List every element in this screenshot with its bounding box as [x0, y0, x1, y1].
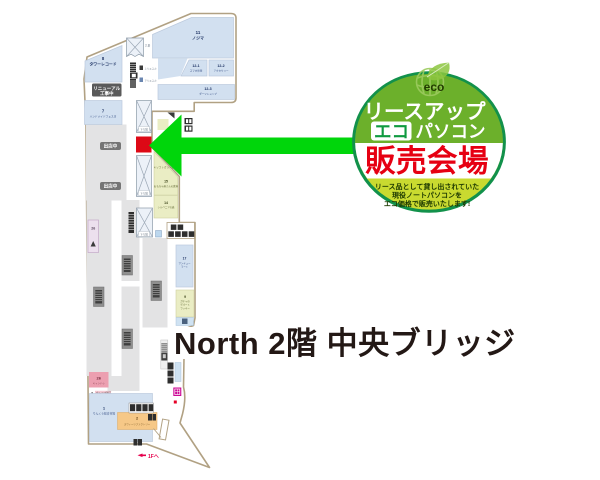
svg-text:出店中: 出店中 [104, 183, 118, 190]
svg-text:12-2: 12-2 [217, 64, 224, 68]
svg-text:1Fへ: 1Fへ [148, 454, 159, 460]
svg-text:出店中: 出店中 [104, 143, 118, 150]
svg-text:工事中: 工事中 [100, 90, 114, 97]
svg-text:リース品として貸し出されていた: リース品として貸し出されていた [375, 182, 479, 191]
svg-text:現役ノートパソコンを: 現役ノートパソコンを [392, 191, 462, 200]
svg-text:eco: eco [424, 80, 445, 94]
svg-text:エコ: エコ [374, 122, 409, 142]
svg-text:販売会場: 販売会場 [365, 145, 489, 179]
svg-text:12-1: 12-1 [192, 64, 199, 68]
svg-text:26: 26 [91, 227, 95, 231]
svg-text:17: 17 [183, 257, 187, 261]
svg-text:ノジマ: ノジマ [192, 36, 204, 41]
svg-text:12-3: 12-3 [204, 87, 211, 91]
svg-text:11: 11 [196, 30, 201, 35]
svg-text:15: 15 [164, 180, 168, 184]
svg-text:パソコン: パソコン [416, 122, 486, 142]
svg-text:2: 2 [136, 417, 138, 421]
svg-text:9: 9 [184, 295, 186, 299]
svg-text:りんくう総合市場: りんくう総合市場 [93, 412, 116, 416]
svg-text:キャンドゥ: キャンドゥ [93, 382, 105, 385]
svg-text:26: 26 [96, 376, 101, 381]
svg-text:North 2階 中央ブリッジ: North 2階 中央ブリッジ [174, 326, 516, 361]
svg-text:14: 14 [164, 201, 168, 205]
svg-text:タワーレコード: タワーレコード [89, 62, 116, 67]
svg-text:リースアップ: リースアップ [364, 101, 486, 124]
svg-text:エコ価格で販売いたします!: エコ価格で販売いたします! [384, 199, 470, 208]
